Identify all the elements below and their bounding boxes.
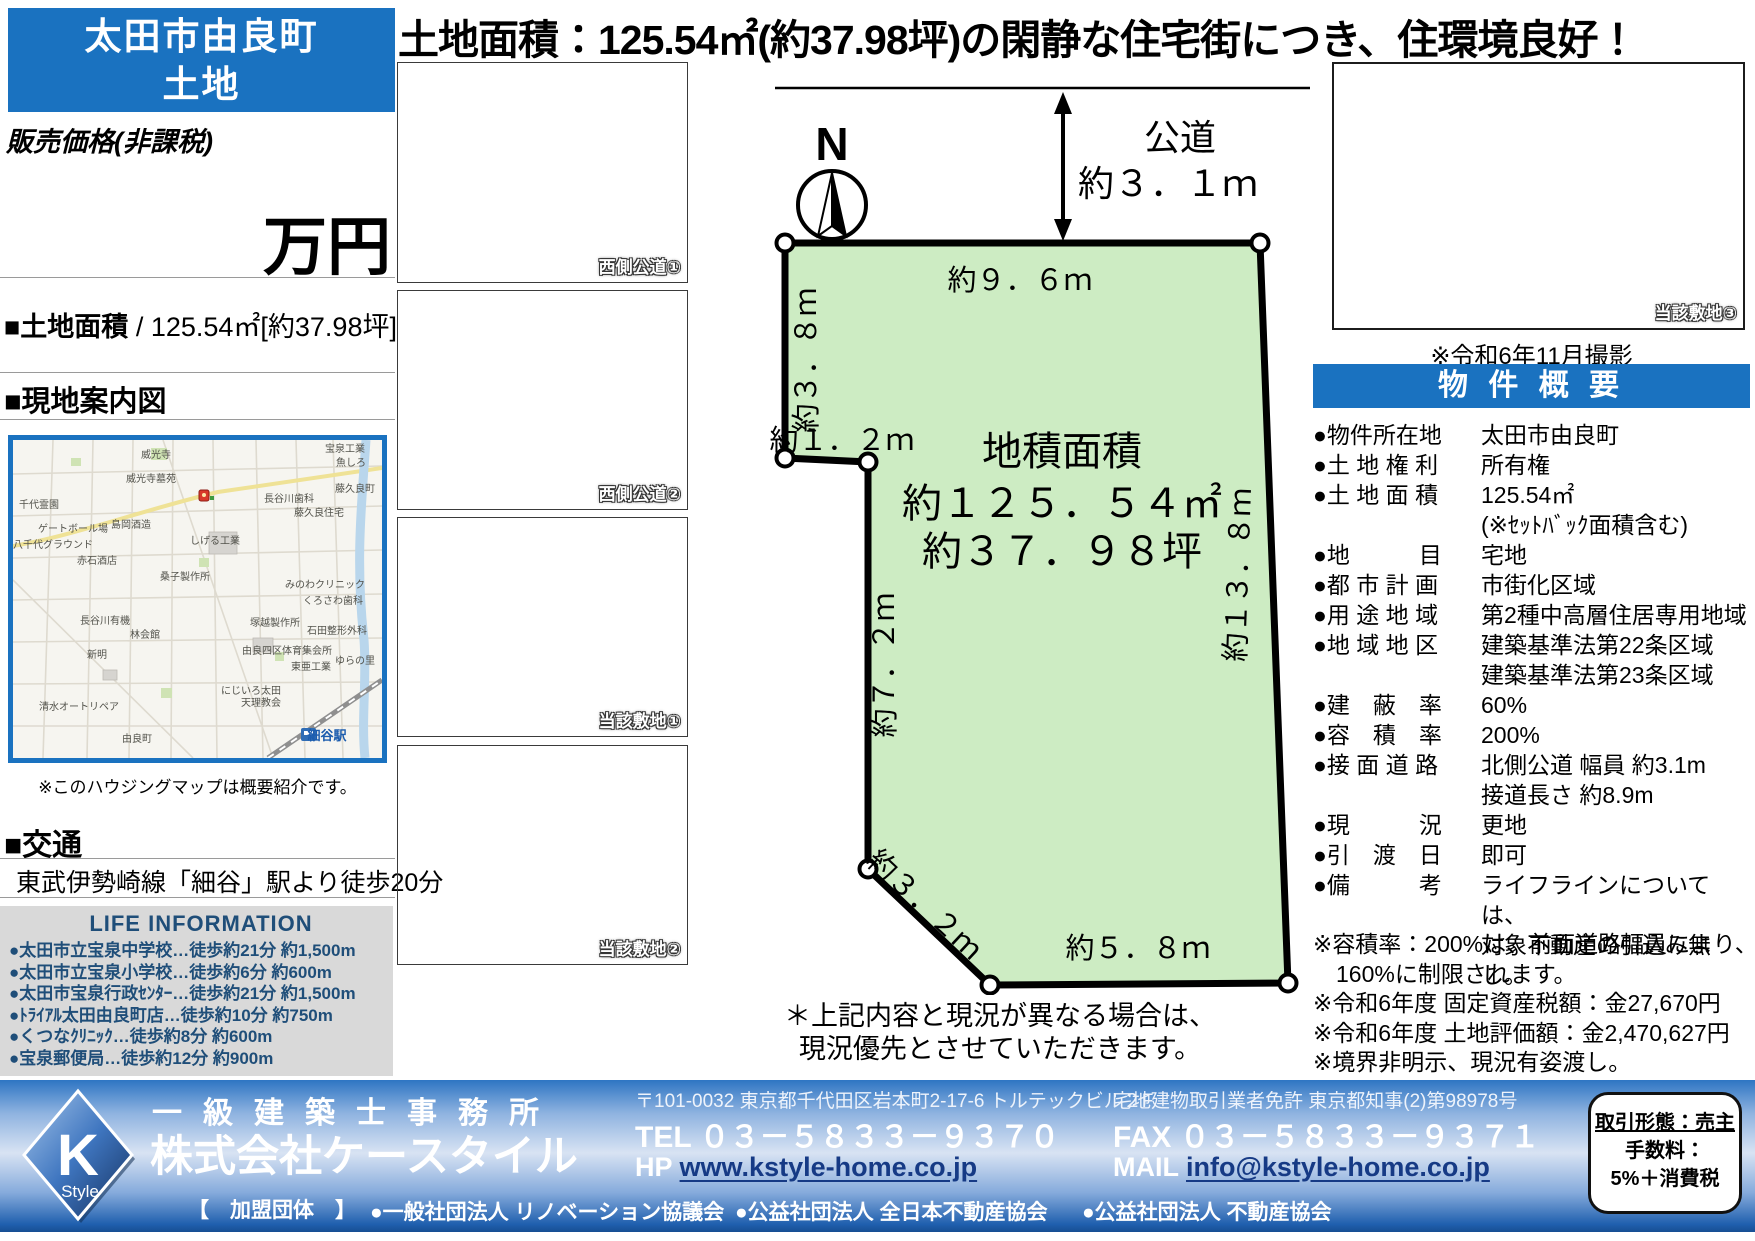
life-item: ●宝泉郵便局…徒歩約12分 約900m — [9, 1048, 393, 1070]
road-width-arrow — [1054, 92, 1072, 241]
land-area-label: ■土地面積 — [4, 312, 128, 342]
map-label: 八千代グラウンド — [13, 538, 93, 551]
plot-disclaimer: ＊上記内容と現況が異なる場合は、 現況優先とさせていただきます。 — [690, 1000, 1310, 1066]
map-label: 威光寺 — [141, 448, 171, 461]
overview-row: ●土 地 権 利所有権 — [1313, 450, 1755, 480]
location-map: 宝泉工業魚しろ威光寺威光寺墓苑千代霊園藤久良町長谷川歯科藤久良住宅ゲートボール場… — [8, 435, 387, 763]
photo-site-1: 当該敷地① — [397, 517, 688, 737]
divider — [0, 858, 395, 859]
map-label: 細谷駅 — [307, 728, 347, 743]
map-label: みのわクリニック — [285, 579, 365, 591]
land-area-row: ■土地面積 / 125.54㎡[約37.98坪] — [4, 305, 397, 344]
map-label: 塚越製作所 — [250, 616, 300, 629]
row-label: ●建 蔽 率 — [1313, 690, 1481, 720]
life-item: ●くつなｸﾘﾆｯｸ…徒歩約8分 約600m — [9, 1026, 393, 1048]
overview-row: ●接 面 道 路北側公道 幅員 約3.1m 接道長さ 約8.9m — [1313, 750, 1755, 810]
overview-row: ●都 市 計 画市街化区域 — [1313, 570, 1755, 600]
property-title-line2: 土地 — [8, 61, 395, 109]
map-label: 林会館 — [130, 628, 160, 641]
row-value: 即可 — [1481, 840, 1527, 870]
row-label: ●都 市 計 画 — [1313, 570, 1481, 600]
map-label: にじいろ太田 — [221, 684, 281, 697]
row-label: ●地 目 — [1313, 540, 1481, 570]
photo-caption: 当該敷地① — [599, 707, 681, 732]
overview-note: ※境界非明示、現況有姿渡し。 — [1313, 1048, 1755, 1078]
photo-caption: 当該敷地③ — [1655, 299, 1737, 324]
photo-west-road-2: 西側公道② — [397, 290, 688, 510]
property-overview-list: ●物件所在地太田市由良町 ●土 地 権 利所有権 ●土 地 面 積125.54㎡… — [1313, 420, 1755, 990]
membership-label: 【 加盟団体 】 — [188, 1194, 356, 1224]
row-value: 北側公道 幅員 約3.1m 接道長さ 約8.9m — [1481, 750, 1706, 810]
overview-row: ●地 目宅地 — [1313, 540, 1755, 570]
dim-left-lower: 約７．２ｍ — [868, 592, 901, 737]
fee-label: 手数料： — [1591, 1137, 1739, 1165]
photo-site-3: 当該敷地③ — [1332, 62, 1745, 330]
map-label: ゲートボール場 — [38, 522, 108, 535]
overview-row: ●土 地 面 積125.54㎡ (※ｾｯﾄﾊﾞｯｸ面積含む) — [1313, 480, 1755, 540]
fax-number: ０３－５８３３－９３７１ — [1180, 1121, 1540, 1154]
company-name: 株式会社ケースタイル — [150, 1122, 578, 1184]
life-item: ●ﾄﾗｲｱﾙ太田由良町店…徒歩約10分 約750m — [9, 1005, 393, 1027]
overview-row: ●引 渡 日即可 — [1313, 840, 1755, 870]
life-item: ●太田市立宝泉中学校…徒歩約21分 約1,500m — [9, 940, 393, 962]
row-value: 宅地 — [1481, 540, 1527, 570]
row-value: 更地 — [1481, 810, 1527, 840]
overview-row: ●建 蔽 率60% — [1313, 690, 1755, 720]
photo-caption: 当該敷地② — [599, 935, 681, 960]
photo-site-2: 当該敷地② — [397, 745, 688, 965]
divider — [0, 277, 395, 278]
overview-row: ●容 積 率200% — [1313, 720, 1755, 750]
map-label: 由良四区体育集会所 — [242, 644, 332, 657]
map-canvas: 宝泉工業魚しろ威光寺威光寺墓苑千代霊園藤久良町長谷川歯科藤久良住宅ゲートボール場… — [13, 440, 382, 758]
mail-link[interactable]: info@kstyle-home.co.jp — [1186, 1152, 1490, 1182]
association-item: ●公益社団法人 全日本不動産協会 — [735, 1196, 1048, 1226]
map-label: 新明 — [87, 649, 107, 661]
row-label: ●容 積 率 — [1313, 720, 1481, 750]
life-information-header: LIFE INFORMATION — [9, 911, 393, 937]
map-label: 東亜工業 — [291, 660, 331, 673]
row-value: 所有権 — [1481, 450, 1550, 480]
map-label: 魚しろ — [336, 456, 366, 469]
hp-row: HP www.kstyle-home.co.jp — [635, 1152, 977, 1183]
svg-text:N: N — [815, 118, 848, 170]
page-headline: 土地面積：125.54㎡(約37.98坪)の閑静な住宅街につき、住環境良好！ — [398, 6, 1755, 66]
map-note: ※このハウジングマップは概要紹介です。 — [8, 773, 387, 798]
compass-icon: N — [798, 118, 866, 239]
row-label: ●現 況 — [1313, 810, 1481, 840]
deal-type: 取引形態：売主 — [1591, 1109, 1739, 1137]
overview-notes: ※容積率：200%は、前面道路幅員により、 160%に制限されます。 ※令和6年… — [1313, 930, 1755, 1078]
road-width-label: 約３．１ｍ — [1078, 163, 1258, 204]
company-logo: K Style — [18, 1085, 138, 1227]
row-label: ●引 渡 日 — [1313, 840, 1481, 870]
association-item: ●公益社団法人 不動産協会 — [1082, 1196, 1332, 1226]
logo-style-text: Style — [61, 1182, 99, 1201]
map-label: 赤石酒店 — [77, 555, 117, 567]
overview-note: ※令和6年度 固定資産税額：金27,670円 — [1313, 989, 1755, 1019]
access-value: 東武伊勢崎線「細谷」駅より徒歩20分 — [16, 863, 443, 899]
row-label: ●土 地 権 利 — [1313, 450, 1481, 480]
dim-right: 約１３．８ｍ — [1219, 487, 1258, 662]
row-value: 125.54㎡ (※ｾｯﾄﾊﾞｯｸ面積含む) — [1481, 480, 1688, 540]
property-title-box: 太田市由良町 土地 — [8, 8, 395, 112]
row-value: 60% — [1481, 690, 1527, 720]
fax-row: FAX ０３－５８３３－９３７１ — [1113, 1112, 1540, 1156]
tel-number: ０３－５８３３－９３７０ — [699, 1121, 1059, 1154]
property-title-line1: 太田市由良町 — [8, 13, 395, 61]
row-label: ●用 途 地 域 — [1313, 600, 1481, 630]
map-label: 桑子製作所 — [160, 570, 210, 583]
row-value: 太田市由良町 — [1481, 420, 1619, 450]
life-item: ●太田市宝泉行政ｾﾝﾀｰ…徒歩約21分 約1,500m — [9, 983, 393, 1005]
divider — [0, 419, 395, 420]
row-label: ●物件所在地 — [1313, 420, 1481, 450]
map-label: 千代霊園 — [19, 499, 59, 511]
price-unit: 万円 — [0, 196, 395, 288]
map-label: 藤久良住宅 — [294, 506, 344, 519]
overview-row: ●物件所在地太田市由良町 — [1313, 420, 1755, 450]
map-label: 島岡酒造 — [111, 518, 151, 531]
fax-label: FAX — [1113, 1121, 1171, 1154]
map-label: 宝泉工業 — [325, 442, 365, 455]
map-label: 威光寺墓苑 — [126, 472, 176, 485]
map-label: 長谷川歯科 — [264, 492, 314, 505]
map-label: 由良町 — [122, 732, 152, 745]
map-label: 石田整形外科 — [307, 624, 367, 637]
divider — [0, 372, 395, 373]
parcel-area-title: 地積面積 — [982, 430, 1142, 474]
dim-top: 約９．６ｍ — [947, 264, 1092, 297]
hp-link[interactable]: www.kstyle-home.co.jp — [680, 1152, 978, 1182]
mail-row: MAIL info@kstyle-home.co.jp — [1113, 1152, 1490, 1183]
fee-value: 5%＋消費税 — [1591, 1165, 1739, 1193]
row-value: 建築基準法第22条区域 建築基準法第23条区域 — [1481, 630, 1714, 690]
map-label: 藤久良町 — [335, 482, 375, 495]
dim-left-upper: 約３．８ｍ — [790, 287, 823, 432]
overview-header: 物 件 概 要 — [1313, 364, 1750, 408]
row-value: 第2種中高層住居専用地域 — [1481, 600, 1747, 630]
parcel-area-tsubo: 約３７．９８坪 — [922, 530, 1202, 574]
map-label: 天理教会 — [241, 696, 281, 709]
company-address: 〒101-0032 東京都千代田区岩本町2-17-6 トルテックビル２F — [635, 1086, 1153, 1113]
life-information-box: LIFE INFORMATION ●太田市立宝泉中学校…徒歩約21分 約1,50… — [0, 906, 393, 1076]
map-label: くろさわ歯科 — [303, 594, 363, 607]
tel-row: TEL ０３－５８３３－９３７０ — [635, 1112, 1059, 1156]
mail-label: MAIL — [1113, 1152, 1179, 1182]
row-label: ●土 地 面 積 — [1313, 480, 1481, 540]
association-item: ●一般社団法人 リノベーション協議会 — [370, 1196, 724, 1226]
road-label: 公道 — [1144, 117, 1216, 158]
tel-label: TEL — [635, 1121, 691, 1154]
plot-disclaimer-line2: 現況優先とさせていただきます。 — [690, 1033, 1310, 1066]
hp-label: HP — [635, 1152, 672, 1182]
overview-row: ●用 途 地 域第2種中高層住居専用地域 — [1313, 600, 1755, 630]
deal-type-box: 取引形態：売主 手数料： 5%＋消費税 — [1588, 1092, 1742, 1214]
row-label: ●地 域 地 区 — [1313, 630, 1481, 690]
overview-note: ※容積率：200%は、前面道路幅員により、 160%に制限されます。 — [1313, 930, 1755, 989]
overview-row: ●現 況更地 — [1313, 810, 1755, 840]
row-value: 200% — [1481, 720, 1540, 750]
dim-bottom: 約５．８ｍ — [1065, 932, 1210, 965]
row-label: ●接 面 道 路 — [1313, 750, 1481, 810]
logo-letter-k: K — [57, 1123, 99, 1188]
overview-row: ●地 域 地 区建築基準法第22条区域 建築基準法第23条区域 — [1313, 630, 1755, 690]
map-label: 清水オートリペア — [39, 700, 119, 713]
life-item: ●太田市立宝泉小学校…徒歩約6分 約600m — [9, 962, 393, 984]
photo-caption: 西側公道① — [599, 253, 681, 278]
map-label: ゆらの里 — [335, 655, 375, 667]
photo-west-road-1: 西側公道① — [397, 62, 688, 283]
divider — [0, 897, 395, 898]
land-area-value: / 125.54㎡[約37.98坪] — [128, 312, 397, 342]
map-label: 長谷川有機 — [80, 614, 130, 627]
dim-step: 約１．２ｍ — [769, 424, 914, 457]
map-section-header: ■現地案内図 — [4, 378, 167, 420]
row-value: 市街化区域 — [1481, 570, 1596, 600]
overview-note: ※令和6年度 土地評価額：金2,470,627円 — [1313, 1019, 1755, 1049]
map-label: しげる工業 — [190, 534, 240, 547]
price-label: 販売価格(非課税) — [6, 120, 213, 159]
parcel-area-m2: 約１２５．５４㎡ — [902, 482, 1222, 526]
photo-caption: 西側公道② — [599, 480, 681, 505]
plot-disclaimer-line1: ＊上記内容と現況が異なる場合は、 — [690, 1000, 1310, 1033]
license-number: 宅地建物取引業者免許 東京都知事(2)第98978号 — [1113, 1086, 1517, 1113]
land-plot-diagram: N 公道 約３．１ｍ 約９．６ｍ 約３．８ｍ 約１．２ｍ 約７．２ｍ 約１３．８… — [690, 60, 1310, 995]
